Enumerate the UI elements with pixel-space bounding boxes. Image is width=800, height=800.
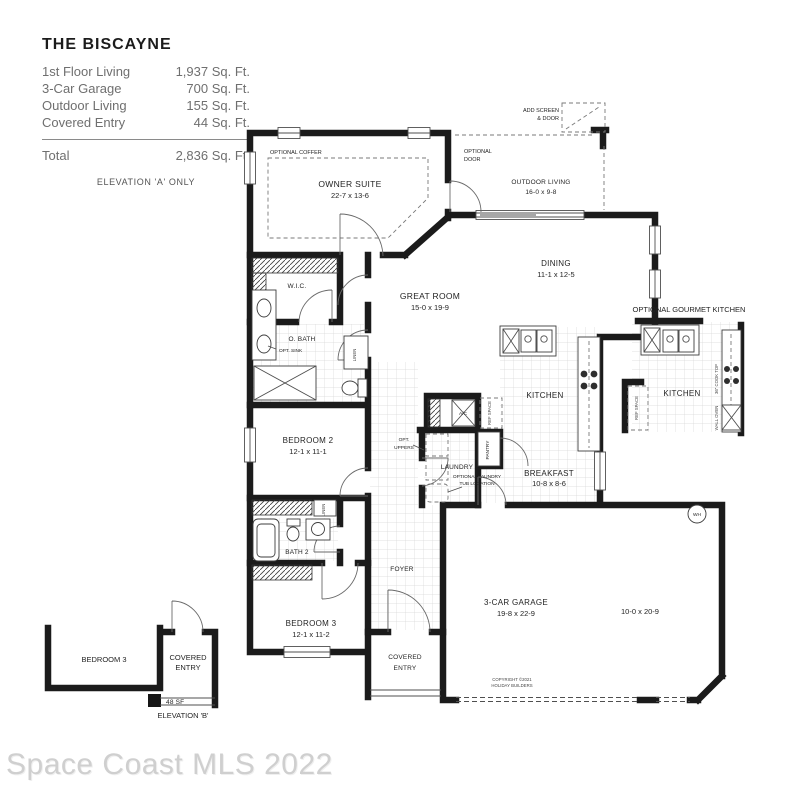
room-dims-bedroom3: 12-1 x 11-2 bbox=[292, 630, 329, 639]
add-screen-door-label: & DOOR bbox=[537, 116, 559, 122]
laundry-tub-label: OPTIONAL LAUNDRY bbox=[453, 474, 502, 480]
burner bbox=[581, 383, 588, 390]
sliding-glass-door bbox=[476, 211, 584, 220]
cook-top-label: 36" COOK TOP bbox=[714, 364, 719, 394]
optional-sink bbox=[257, 335, 271, 353]
window bbox=[245, 152, 256, 184]
opt-uppers-label: OPT. bbox=[399, 437, 410, 443]
sink-bowl bbox=[663, 330, 678, 352]
window bbox=[595, 452, 606, 490]
bedroom2-closet-shelf bbox=[252, 500, 312, 515]
sink bbox=[257, 299, 271, 317]
laundry-tub-label: TUB LOCATION bbox=[459, 481, 495, 487]
window bbox=[284, 647, 330, 658]
elevation-b-area-label: 48 SF bbox=[166, 699, 184, 706]
opt-uppers-label: UPPERS bbox=[394, 445, 414, 451]
room-label-breakfast: BREAKFAST bbox=[524, 469, 574, 478]
toilet bbox=[342, 381, 358, 395]
room-dims-owner-suite: 22-7 x 13-6 bbox=[331, 191, 369, 200]
toilet-tank bbox=[287, 519, 300, 526]
room-label-owner-bath: O. BATH bbox=[289, 336, 316, 343]
room-label-dining: DINING bbox=[541, 259, 571, 268]
room-dims-great-room: 15-0 x 19-9 bbox=[411, 303, 449, 312]
screen-enclosure-outline bbox=[455, 135, 604, 210]
sink-bowl bbox=[537, 330, 552, 352]
burner bbox=[591, 371, 598, 378]
optional-door-label: OPTIONAL bbox=[464, 149, 492, 155]
floor-plan-drawing: OWNER SUITE 22-7 x 13-6 OUTDOOR LIVING 1… bbox=[0, 0, 800, 800]
room-label-kitchen: KITCHEN bbox=[526, 391, 563, 400]
optional-door-label: DOOR bbox=[464, 157, 481, 163]
room-label-outdoor-living: OUTDOOR LIVING bbox=[511, 179, 570, 186]
room-label-garage: 3-CAR GARAGE bbox=[484, 598, 548, 607]
wic-shelf bbox=[252, 258, 338, 273]
toilet bbox=[287, 527, 299, 541]
burner bbox=[591, 383, 598, 390]
add-screen-door-label: ADD SCREEN bbox=[523, 108, 559, 114]
linen-label: LINEN bbox=[352, 349, 357, 362]
window bbox=[245, 428, 256, 462]
burner bbox=[733, 378, 739, 384]
wall-oven-label: WALL OVEN bbox=[714, 406, 719, 431]
ref-space-label: REF SPACE bbox=[487, 401, 492, 425]
room-dims-outdoor-living: 16-0 x 9-8 bbox=[525, 189, 556, 196]
room-label-laundry: LAUNDRY bbox=[441, 464, 474, 471]
owner-suite-door bbox=[340, 214, 383, 256]
elevation-b-label: ELEVATION 'B' bbox=[158, 711, 210, 720]
optional-coffer-label: OPTIONAL COFFER bbox=[270, 150, 322, 156]
pantry-label: PANTRY bbox=[485, 440, 491, 460]
optional-door-swing bbox=[450, 181, 481, 212]
entry-steps bbox=[370, 690, 441, 696]
room-label-foyer: FOYER bbox=[390, 566, 413, 573]
room-label-bedroom2: BEDROOM 2 bbox=[283, 436, 334, 445]
screen-door-leaf bbox=[566, 107, 599, 129]
room-dims-garage: 19-8 x 22-9 bbox=[497, 609, 535, 618]
elevation-b-covered-entry-label: ENTRY bbox=[175, 663, 200, 672]
window bbox=[278, 128, 300, 139]
room-dims-bedroom2: 12-1 x 11-1 bbox=[289, 447, 326, 456]
ac-label: A/C bbox=[459, 411, 468, 417]
gourmet-kitchen-title: OPTIONAL GOURMET KITCHEN bbox=[633, 305, 746, 314]
opt-sink-label: OPT. SINK bbox=[279, 348, 303, 354]
added-sf-marker bbox=[148, 694, 161, 707]
bifold-door bbox=[428, 399, 440, 427]
room-dims-garage-bay: 10-0 x 20-9 bbox=[621, 607, 659, 616]
elevation-b-covered-entry-label: COVERED bbox=[169, 653, 207, 662]
burner bbox=[724, 366, 730, 372]
wic-door bbox=[299, 290, 332, 322]
bathtub-inner bbox=[257, 524, 275, 557]
room-label-great-room: GREAT ROOM bbox=[400, 291, 460, 301]
sink-bowl bbox=[679, 330, 694, 352]
room-dims-breakfast: 10-8 x 8-6 bbox=[532, 479, 566, 488]
room-label-wic: W.I.C. bbox=[288, 283, 307, 290]
room-label-covered-entry: COVERED bbox=[388, 654, 422, 661]
gourmet-kitchen-room-label: KITCHEN bbox=[663, 389, 700, 398]
burner bbox=[733, 366, 739, 372]
bedroom3-door bbox=[322, 563, 358, 599]
bedroom2-door bbox=[340, 468, 368, 496]
water-heater-label: WH bbox=[693, 512, 702, 518]
bedroom3-closet-shelf bbox=[252, 565, 312, 580]
copyright-label: HOLIDAY BUILDERS bbox=[491, 683, 532, 688]
room-dims-dining: 11-1 x 12-5 bbox=[537, 270, 574, 279]
room-label-bedroom3: BEDROOM 3 bbox=[286, 619, 337, 628]
window bbox=[650, 226, 661, 254]
ref-space-label: REF SPACE bbox=[634, 396, 639, 420]
room-label-owner-suite: OWNER SUITE bbox=[318, 179, 381, 189]
window bbox=[650, 270, 661, 298]
elevation-b-bedroom3-label: BEDROOM 3 bbox=[81, 655, 126, 664]
mls-watermark: Space Coast MLS 2022 bbox=[6, 748, 333, 782]
burner bbox=[724, 378, 730, 384]
copyright-label: COPYRIGHT ©2021 bbox=[492, 677, 532, 682]
toilet-tank bbox=[358, 379, 367, 397]
window bbox=[408, 128, 430, 139]
linen-label: LINEN bbox=[321, 504, 326, 517]
room-label-bath2: BATH 2 bbox=[285, 549, 309, 556]
elevation-b-entry-door bbox=[172, 601, 203, 632]
sink-bowl bbox=[521, 330, 536, 352]
burner bbox=[581, 371, 588, 378]
floor-plan-page: { "title_block": { "name": "THE BISCAYNE… bbox=[0, 0, 800, 800]
room-label-covered-entry: ENTRY bbox=[394, 665, 417, 672]
sink bbox=[312, 523, 325, 536]
